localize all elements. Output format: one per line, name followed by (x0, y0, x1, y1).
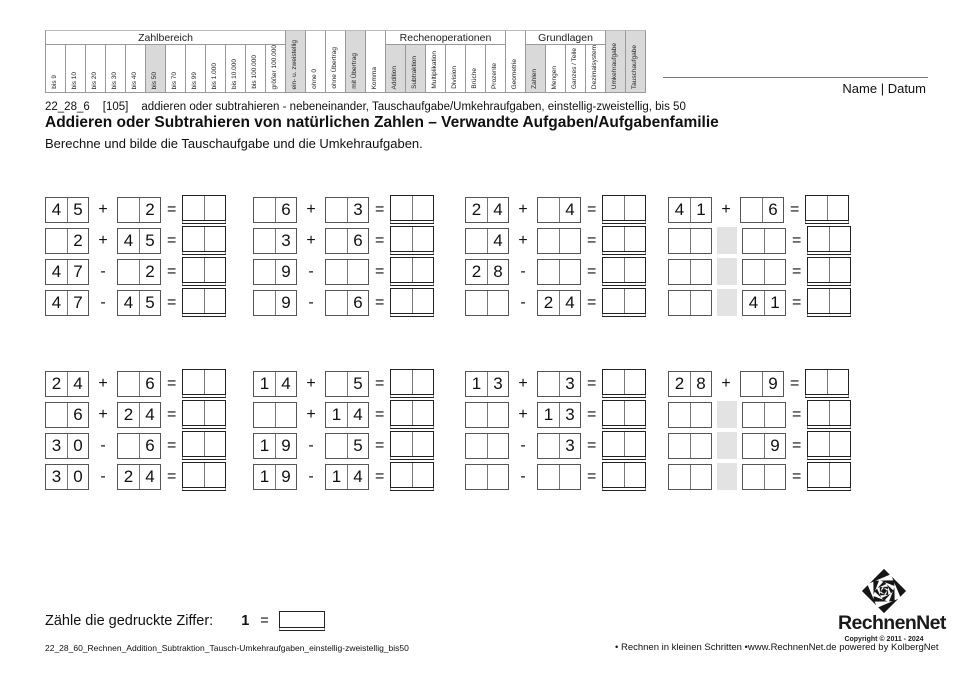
operator-sign: - (302, 294, 320, 312)
digit-cell: 5 (139, 291, 160, 315)
problem-row: 41+6= (668, 194, 851, 225)
operator-sign: - (302, 437, 320, 455)
digit-cell (808, 227, 829, 251)
answer-box (602, 288, 646, 317)
header-col-geometrie: Geometrie (506, 30, 526, 92)
problem-row: 47-45= (45, 287, 226, 318)
digit-cell: 2 (67, 229, 88, 253)
operator-sign: + (94, 375, 112, 393)
digit-cell (326, 229, 347, 253)
digit-cell (118, 372, 139, 396)
digit-cell: 0 (67, 465, 88, 489)
header-col-bis-70: bis 70 (166, 45, 186, 92)
digit-cell: 1 (254, 434, 275, 458)
header-col-dezimalsystem: Dezimalsystem (586, 45, 606, 92)
operand-box: 3 (537, 371, 581, 397)
digit-cell (466, 465, 487, 489)
digit-cell: 6 (139, 372, 160, 396)
operand-box: 9 (742, 433, 786, 459)
worksheet-number: [105] (103, 101, 129, 113)
header-col-label: bis 50 (152, 72, 159, 89)
answer-box (390, 257, 434, 286)
digit-cell (829, 401, 850, 425)
operand-box: 47 (45, 259, 89, 285)
header-col-label: Umkehraufgabe (612, 43, 619, 89)
equals-sign: = (375, 232, 384, 250)
footer-motto: • Rechnen in kleinen Schritten • (615, 642, 748, 653)
problem-row: 45+2= (45, 194, 226, 225)
operator-sign: + (717, 375, 735, 393)
digit-cell (538, 198, 559, 222)
operator-blank (717, 432, 737, 459)
digit-cell: 2 (538, 291, 559, 315)
footer-website: www.RechnenNet.de powered by KolbergNet (748, 642, 939, 653)
digit-cell (559, 260, 580, 284)
digit-cell (326, 291, 347, 315)
digit-cell (466, 229, 487, 253)
header-col-ohne-0: ohne 0 (306, 30, 326, 92)
equals-sign: = (375, 294, 384, 312)
header-col-gr-er-100-000: größer 100.000 (266, 45, 286, 92)
digit-cell (603, 401, 624, 425)
header-col-ein-u-zweistellig: ein- u. zweistellig (286, 30, 306, 92)
answer-box (182, 431, 226, 460)
operand-box: 6 (253, 197, 297, 223)
problem-row: 24+4= (465, 194, 646, 225)
page-title: Addieren oder Subtrahieren von natürlich… (45, 114, 719, 132)
header-col-bis-10-000: bis 10.000 (226, 45, 246, 92)
operand-box: 3 (253, 228, 297, 254)
digit-cell (183, 432, 204, 456)
header-col-subtraktion: Subtraktion (406, 45, 426, 92)
digit-cell: 6 (762, 198, 783, 222)
operand-box: 5 (325, 433, 369, 459)
operator-sign: + (94, 232, 112, 250)
digit-cell: 1 (538, 403, 559, 427)
digit-cell: 6 (275, 198, 296, 222)
header-col-label: Zahlen (532, 69, 539, 89)
operand-box: 2 (117, 259, 161, 285)
header-col-label: Komma (372, 67, 379, 89)
operand-box (465, 290, 509, 316)
answer-box (602, 462, 646, 491)
digit-cell (466, 434, 487, 458)
digit-cell: 4 (559, 291, 580, 315)
equals-sign: = (587, 263, 596, 281)
answer-box (182, 462, 226, 491)
digit-cell (764, 403, 785, 427)
digit-cell (669, 291, 690, 315)
digit-cell: 3 (487, 372, 508, 396)
digit-cell: 5 (67, 198, 88, 222)
digit-cell (829, 227, 850, 251)
equals-sign: = (792, 437, 801, 455)
equals-sign: = (587, 232, 596, 250)
problem-family: 6+3=3+6=9-=9-6= (253, 194, 434, 318)
digit-cell: 4 (347, 465, 368, 489)
operator-sign: + (94, 201, 112, 219)
header-col-bis-99: bis 99 (186, 45, 206, 92)
digit-cell (808, 401, 829, 425)
problem-family: 28+9==9== (668, 368, 851, 492)
digit-cell (487, 465, 508, 489)
problem-block-1: 45+2=2+45=47-2=47-45=6+3=3+6=9-=9-6=24+4… (45, 194, 875, 326)
problem-row: 4+= (465, 225, 646, 256)
equals-sign: = (792, 294, 801, 312)
digit-cell (538, 260, 559, 284)
digit-cell: 9 (762, 372, 783, 396)
digit-cell (391, 401, 412, 425)
digit-cell: 3 (347, 198, 368, 222)
operator-sign: - (302, 468, 320, 486)
problem-family: 13+3=+13=-3=-= (465, 368, 646, 492)
operand-box: 9 (740, 371, 784, 397)
digit-cell: 4 (347, 403, 368, 427)
digit-cell (559, 465, 580, 489)
operand-box (253, 402, 297, 428)
digit-cell (603, 227, 624, 251)
digit-cell (808, 463, 829, 487)
rechnennet-logo: RechnenNet Copyright © 2011 - 2024 (838, 568, 930, 643)
digit-cell (204, 370, 225, 394)
equals-sign: = (587, 294, 596, 312)
operand-box (668, 402, 712, 428)
answer-box (602, 431, 646, 460)
equals-sign: = (587, 375, 596, 393)
header-col-label: Tauschaufgabe (632, 45, 639, 89)
digit-cell (669, 465, 690, 489)
header-col-addition: Addition (386, 45, 406, 92)
spiral-pinwheel-icon (859, 568, 909, 614)
digit-cell (487, 434, 508, 458)
operand-box: 5 (325, 371, 369, 397)
digit-cell (254, 291, 275, 315)
digit-cell (827, 370, 848, 394)
operand-box: 6 (325, 228, 369, 254)
operator-blank (717, 401, 737, 428)
digit-cell: 2 (139, 260, 160, 284)
operand-box (668, 259, 712, 285)
digit-cell: 9 (275, 291, 296, 315)
digit-cell: 3 (559, 434, 580, 458)
digit-cell (347, 260, 368, 284)
operand-box (465, 433, 509, 459)
operand-box: 41 (742, 290, 786, 316)
problem-row: 6+3= (253, 194, 434, 225)
problem-row: +13= (465, 399, 646, 430)
digit-cell (743, 434, 764, 458)
digit-cell (412, 463, 433, 487)
header-col-label: Addition (392, 66, 399, 90)
worksheet-code-desc: addieren oder subtrahieren - nebeneinand… (141, 101, 685, 113)
operand-box: 19 (253, 464, 297, 490)
digit-cell (183, 289, 204, 313)
answer-box (182, 400, 226, 429)
digit-cell: 2 (466, 260, 487, 284)
operand-box: 45 (45, 197, 89, 223)
digit-cell (391, 289, 412, 313)
name-datum-line (663, 77, 928, 78)
logo-name: RechnenNet (838, 614, 930, 634)
header-col-label: bis 10.000 (232, 59, 239, 89)
answer-box (807, 257, 851, 286)
operator-sign: - (94, 437, 112, 455)
digit-cell: 1 (690, 198, 711, 222)
header-col-bis-1-000: bis 1.000 (206, 45, 226, 92)
digit-cell (183, 370, 204, 394)
digit-cell (183, 463, 204, 487)
digit-cell (204, 289, 225, 313)
equals-sign: = (587, 437, 596, 455)
digit-cell (764, 465, 785, 489)
digit-cell (690, 434, 711, 458)
digit-cell (624, 196, 645, 220)
instruction-text: Berechne und bilde die Tauschaufgabe und… (45, 136, 423, 151)
digit-cell (391, 258, 412, 282)
problem-row: 28-= (465, 256, 646, 287)
equals-sign: = (375, 468, 384, 486)
header-col-label: Geometrie (512, 59, 519, 89)
digit-cell: 8 (487, 260, 508, 284)
digit-cell: 4 (118, 229, 139, 253)
operator-sign: + (514, 406, 532, 424)
problem-row: = (668, 399, 851, 430)
operand-box: 30 (45, 464, 89, 490)
operator-blank (717, 227, 737, 254)
header-col-label: Division (452, 66, 459, 89)
digit-cell (118, 260, 139, 284)
digit-cell: 2 (46, 372, 67, 396)
name-datum-label: Name | Datum (663, 81, 926, 96)
digit-cell (743, 403, 764, 427)
digit-cell: 4 (46, 260, 67, 284)
digit-cell (827, 196, 848, 220)
footer-right: • Rechnen in kleinen Schritten • www.Rec… (615, 642, 927, 653)
problem-row: = (668, 225, 851, 256)
operand-box: 6 (45, 402, 89, 428)
header-col-bis-9: bis 9 (46, 45, 66, 92)
digit-cell: 4 (139, 403, 160, 427)
operand-box: 30 (45, 433, 89, 459)
count-task: Zähle die gedruckte Ziffer: 1 = (45, 611, 325, 631)
header-col-label: bis 1.000 (212, 63, 219, 89)
header-col-bis-100-000: bis 100.000 (246, 45, 266, 92)
digit-cell (690, 465, 711, 489)
operand-box: 14 (253, 371, 297, 397)
operator-sign: - (514, 468, 532, 486)
digit-cell: 6 (67, 403, 88, 427)
digit-cell (743, 465, 764, 489)
equals-sign: = (167, 232, 176, 250)
equals-sign: = (587, 468, 596, 486)
problem-row: 9-= (253, 256, 434, 287)
operand-box (537, 464, 581, 490)
problem-row: = (668, 256, 851, 287)
answer-box (182, 226, 226, 255)
digit-cell (829, 258, 850, 282)
worksheet-code: 22_28_6 (45, 101, 90, 113)
operand-box: 45 (117, 290, 161, 316)
header-col-ganzes-teile: Ganzes / Teile (566, 45, 586, 92)
digit-cell (466, 291, 487, 315)
digit-cell (690, 229, 711, 253)
header-col-label: bis 10 (72, 72, 79, 89)
equals-sign: = (375, 406, 384, 424)
header-group-label: Grundlagen (526, 30, 606, 45)
operator-sign: + (302, 406, 320, 424)
digit-cell (603, 463, 624, 487)
header-col-mengen: Mengen (546, 45, 566, 92)
digit-cell: 4 (743, 291, 764, 315)
problem-row: 3+6= (253, 225, 434, 256)
problem-family: 24+6=6+24=30-6=30-24= (45, 368, 226, 492)
header-col-label: Multiplikation (432, 51, 439, 89)
header-col-bis-50: bis 50 (146, 45, 166, 92)
answer-box (390, 226, 434, 255)
operand-box (537, 228, 581, 254)
header-col-label: Subtraktion (412, 56, 419, 89)
operand-box: 2 (45, 228, 89, 254)
header-col-label: ein- u. zweistellig (292, 40, 299, 90)
digit-cell (808, 258, 829, 282)
operator-sign: - (514, 437, 532, 455)
answer-box (807, 226, 851, 255)
operand-box: 2 (117, 197, 161, 223)
digit-cell (412, 227, 433, 251)
problem-family: 45+2=2+45=47-2=47-45= (45, 194, 226, 318)
digit-cell (559, 229, 580, 253)
equals-sign: = (790, 201, 799, 219)
digit-cell (808, 289, 829, 313)
digit-cell (391, 227, 412, 251)
digit-cell: 4 (669, 198, 690, 222)
digit-cell (412, 432, 433, 456)
operand-box (537, 259, 581, 285)
digit-cell: 4 (487, 229, 508, 253)
digit-cell: 3 (275, 229, 296, 253)
problem-row: 9= (668, 430, 851, 461)
answer-box (807, 431, 851, 460)
problem-row: 6+24= (45, 399, 226, 430)
digit-cell: 1 (764, 291, 785, 315)
digit-cell (624, 432, 645, 456)
problem-family: 14+5=+14=19-5=19-14= (253, 368, 434, 492)
problem-row: 13+3= (465, 368, 646, 399)
operand-box: 13 (465, 371, 509, 397)
header-col-label: bis 9 (52, 75, 59, 89)
operand-box (742, 464, 786, 490)
digit-cell (806, 196, 827, 220)
digit-cell (326, 198, 347, 222)
digit-cell: 2 (118, 465, 139, 489)
digit-cell: 0 (67, 434, 88, 458)
digit-cell: 1 (254, 372, 275, 396)
header-col-division: Division (446, 45, 466, 92)
operator-sign: - (302, 263, 320, 281)
digit-cell (829, 463, 850, 487)
digit-cell: 9 (275, 465, 296, 489)
digit-cell (204, 401, 225, 425)
answer-box (807, 462, 851, 491)
digit-cell (603, 370, 624, 394)
header-col-br-che: Brüche (466, 45, 486, 92)
answer-box (807, 288, 851, 317)
operand-box: 13 (537, 402, 581, 428)
operator-blank (717, 289, 737, 316)
problem-row: 2+45= (45, 225, 226, 256)
digit-cell (118, 198, 139, 222)
operand-box: 45 (117, 228, 161, 254)
answer-box (390, 400, 434, 429)
problem-row: 41= (668, 287, 851, 318)
operator-sign: - (94, 294, 112, 312)
digit-cell: 2 (139, 198, 160, 222)
header-col-zahlen: Zahlen (526, 45, 546, 92)
equals-sign: = (792, 468, 801, 486)
operand-box (668, 290, 712, 316)
digit-cell (743, 229, 764, 253)
digit-cell (46, 403, 67, 427)
answer-box (805, 369, 849, 398)
operator-blank (717, 463, 737, 490)
digit-cell: 4 (46, 291, 67, 315)
digit-cell: 5 (347, 372, 368, 396)
digit-cell: 9 (275, 434, 296, 458)
header-col-ohne-bertrag: ohne Übertrag (326, 30, 346, 92)
digit-cell: 9 (275, 260, 296, 284)
answer-box (182, 195, 226, 224)
problem-row: -3= (465, 430, 646, 461)
digit-cell (412, 401, 433, 425)
operand-box: 6 (325, 290, 369, 316)
digit-cell (743, 260, 764, 284)
digit-cell (624, 463, 645, 487)
equals-sign: = (587, 406, 596, 424)
answer-box (182, 369, 226, 398)
digit-cell: 1 (466, 372, 487, 396)
digit-cell (669, 229, 690, 253)
digit-cell (326, 260, 347, 284)
digit-cell (275, 403, 296, 427)
digit-cell (412, 289, 433, 313)
operand-box (465, 464, 509, 490)
digit-cell (806, 370, 827, 394)
digit-cell (487, 403, 508, 427)
equals-sign: = (260, 613, 268, 629)
answer-box (807, 400, 851, 429)
operator-sign: + (302, 375, 320, 393)
operand-box: 28 (465, 259, 509, 285)
digit-cell: 7 (67, 291, 88, 315)
problem-row: 19-5= (253, 430, 434, 461)
operand-box (742, 402, 786, 428)
operand-box: 3 (537, 433, 581, 459)
problem-row: 19-14= (253, 461, 434, 492)
header-col-label: bis 99 (192, 72, 199, 89)
digit-cell (808, 432, 829, 456)
answer-box (182, 288, 226, 317)
equals-sign: = (375, 263, 384, 281)
footer-filename: 22_28_60_Rechnen_Addition_Subtraktion_Ta… (45, 643, 409, 653)
digit-cell (741, 372, 762, 396)
digit-cell (538, 434, 559, 458)
operator-sign: + (302, 232, 320, 250)
digit-cell (669, 260, 690, 284)
digit-cell: 2 (669, 372, 690, 396)
header-group-label: Zahlbereich (46, 30, 286, 45)
problem-row: 24+6= (45, 368, 226, 399)
digit-cell (46, 229, 67, 253)
